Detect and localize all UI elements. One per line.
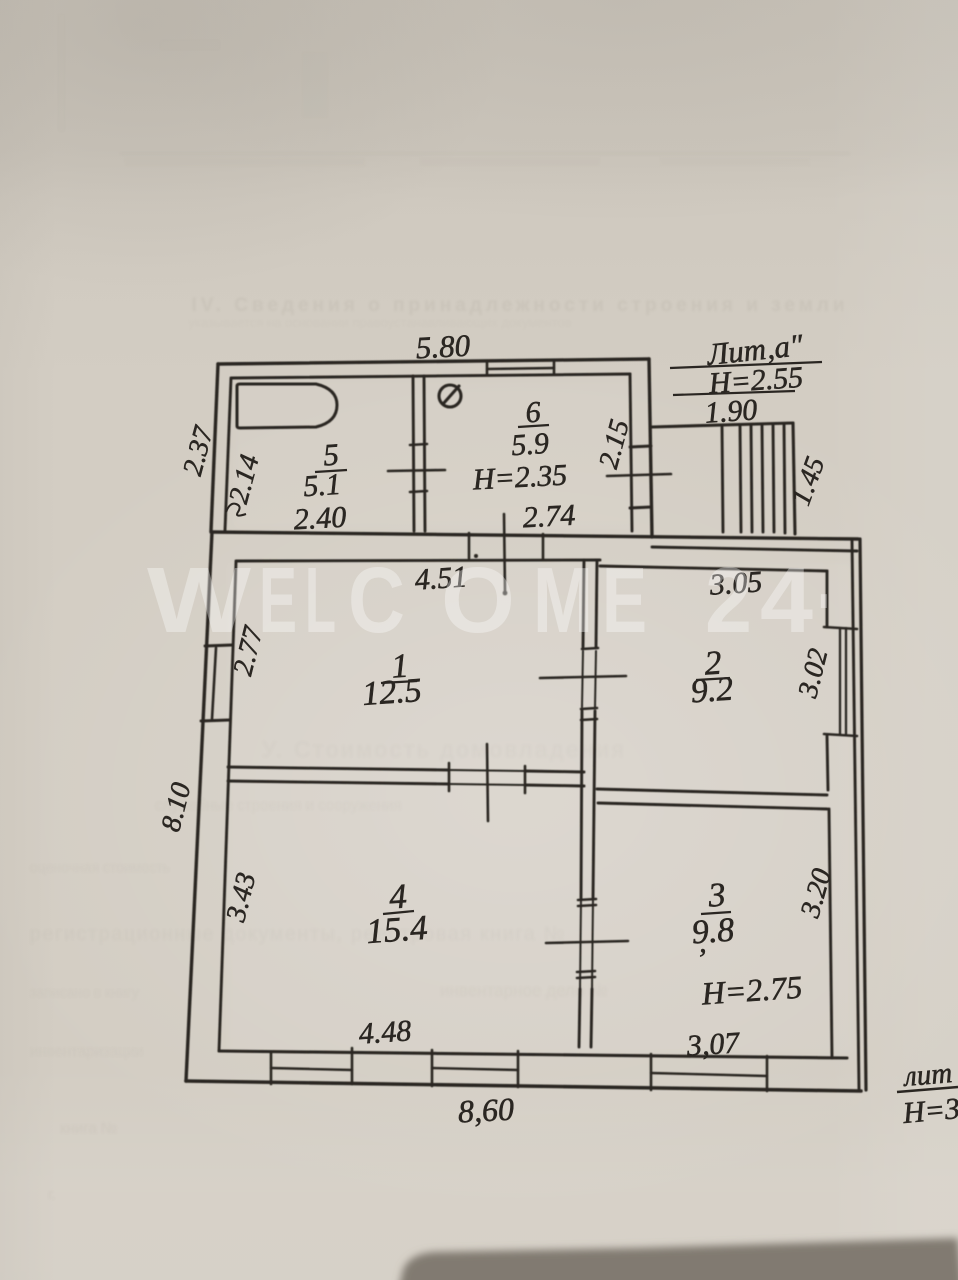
svg-text:8,60: 8,60 [457, 1091, 515, 1130]
svg-text:Н=3: Н=3 [901, 1092, 958, 1130]
svg-text:12.5: 12.5 [361, 672, 423, 713]
svg-text:W: W [147, 548, 251, 652]
svg-text:3: 3 [706, 876, 727, 914]
svg-text:3,07: 3,07 [685, 1026, 743, 1063]
svg-text:O: O [441, 548, 515, 652]
svg-text:5.1: 5.1 [302, 468, 342, 504]
svg-text:1.90: 1.90 [704, 393, 759, 430]
svg-text:указывается на основании право: указывается на основании правоустанавлив… [188, 315, 571, 330]
svg-text:4.48: 4.48 [358, 1014, 413, 1051]
svg-text:C: C [348, 548, 405, 652]
svg-text:·: · [818, 548, 832, 652]
svg-text:Н=2.75: Н=2.75 [699, 969, 803, 1012]
svg-text:инвентаризации: инвентаризации [30, 1043, 143, 1060]
svg-text:2: 2 [705, 548, 752, 652]
svg-text:9.2: 9.2 [689, 671, 734, 711]
svg-text:6: 6 [524, 396, 541, 430]
svg-text:9.8: 9.8 [690, 912, 735, 952]
svg-text:г.: г. [48, 1186, 55, 1202]
svg-text:,: , [699, 926, 707, 959]
svg-text:5.9: 5.9 [510, 427, 550, 463]
svg-text:8.10: 8.10 [156, 780, 198, 835]
svg-text:ІV. Сведения о принадлежности: ІV. Сведения о принадлежности строения и… [191, 295, 848, 316]
svg-text:M: M [533, 548, 593, 652]
svg-text:Н=2.35: Н=2.35 [471, 459, 568, 497]
svg-text:оценочная стоимость: оценочная стоимость [30, 859, 170, 875]
svg-text:E: E [259, 548, 297, 652]
svg-text:2.40: 2.40 [293, 501, 347, 537]
svg-text:4: 4 [760, 548, 813, 652]
svg-text:5.80: 5.80 [415, 328, 472, 366]
svg-text:записано в книгу: записано в книгу [30, 984, 139, 1000]
svg-text:E: E [602, 548, 647, 652]
svg-text:книга №: книга № [60, 1120, 117, 1137]
svg-text:2.74: 2.74 [522, 499, 576, 535]
svg-text:15.4: 15.4 [365, 908, 429, 951]
svg-text:L: L [305, 548, 336, 652]
